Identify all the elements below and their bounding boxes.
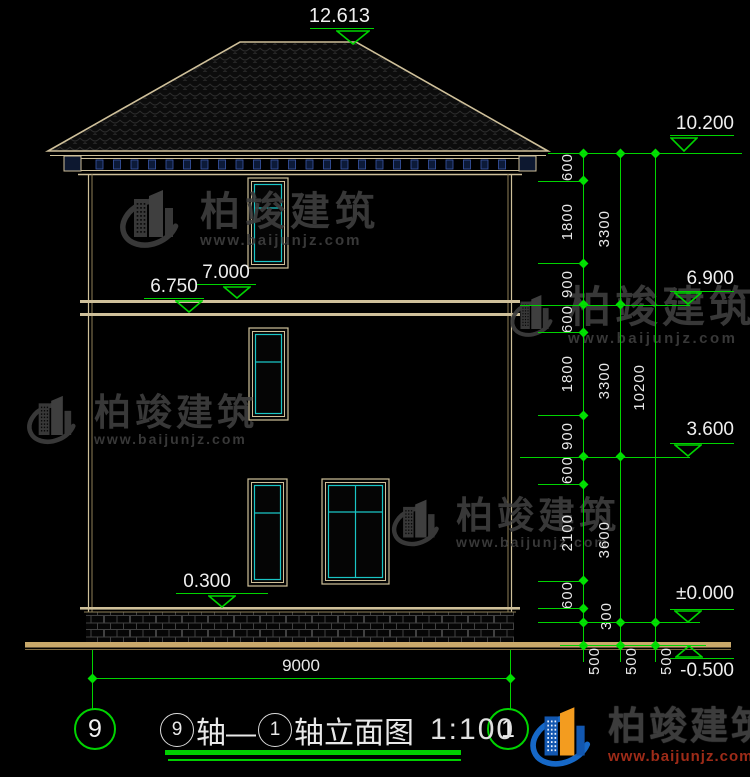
- elevation-marker-value: 12.613: [298, 6, 370, 26]
- elevation-marker-value: 7.000: [196, 263, 256, 282]
- dimension-label: 10200: [625, 153, 653, 622]
- dimension-line: [92, 678, 510, 679]
- dimension-label: 2100: [553, 484, 581, 581]
- dimension-value: 900: [560, 270, 575, 298]
- dimension-value: 500: [624, 647, 639, 675]
- watermark-site: www.baijunjz.com: [200, 233, 380, 248]
- title-suffix-text: 轴立面图: [294, 708, 414, 752]
- elevation-triangle-icon: [223, 286, 251, 304]
- dimension-line: [310, 28, 374, 29]
- dimension-value: 2100: [560, 514, 575, 551]
- dimension-line: [538, 608, 583, 609]
- dimension-label: 900: [553, 263, 581, 304]
- dimension-line: [520, 457, 690, 458]
- dimension-value: 500: [587, 647, 602, 675]
- dimension-line: [670, 135, 734, 136]
- eave-corbel-right: [519, 156, 536, 171]
- title-axis-start: 9: [172, 719, 183, 741]
- elevation-marker-value: 0.300: [176, 572, 238, 591]
- eave-assembly: [64, 156, 536, 175]
- roof-tile-hatch: [48, 42, 548, 151]
- brand-logo-icon: [110, 183, 190, 255]
- dimension-line: [538, 332, 583, 333]
- title-axis-start-bubble: 9: [160, 713, 194, 747]
- dimension-label: 900: [553, 415, 581, 456]
- dimension-line: [620, 153, 621, 662]
- elevation-triangle-icon: [670, 137, 698, 157]
- watermark: 柏竣建筑 www.baijunjz.com: [110, 183, 380, 255]
- dimension-label: 1800: [553, 332, 581, 415]
- dimension-line: [548, 153, 742, 154]
- dimension-value: 600: [560, 581, 575, 609]
- dimension-label: 1800: [553, 181, 581, 264]
- eave-corbel-left: [64, 156, 81, 171]
- title-axis-end: 1: [270, 719, 281, 741]
- dimension-label: 3300: [590, 153, 618, 305]
- dimension-label: 500: [585, 646, 603, 676]
- dimension-label: 3600: [590, 457, 618, 623]
- dimension-label: 500: [622, 646, 640, 676]
- hip-roof: [48, 42, 548, 156]
- brick-base-hatch: [86, 613, 514, 643]
- window-first-floor-right: [322, 479, 389, 584]
- dimension-line: [538, 181, 583, 182]
- watermark-brand: 柏竣建筑: [200, 191, 380, 233]
- dimension-line: [176, 593, 268, 594]
- dimension-value: 3300: [597, 210, 612, 247]
- elevation-triangle-icon: [208, 595, 236, 613]
- dimension-value: 900: [560, 422, 575, 450]
- title-underline-thick: [165, 750, 461, 755]
- rafter-tails: [96, 160, 506, 169]
- plinth-band: [80, 607, 520, 612]
- dimension-label: 600: [553, 305, 581, 333]
- elevation-marker-value: 3.600: [670, 420, 734, 439]
- dimension-label: 600: [553, 581, 581, 609]
- bottom-dimension-label: 9000: [262, 657, 340, 674]
- dimension-value: 10200: [632, 364, 647, 411]
- axis-bubble-9: 9: [74, 708, 116, 750]
- dimension-value: 3600: [597, 521, 612, 558]
- dimension-line: [144, 298, 204, 299]
- dimension-line: [538, 415, 583, 416]
- elevation-marker-value: 6.900: [670, 269, 734, 288]
- dimension-label: 600: [553, 457, 581, 485]
- dimension-value: 1800: [560, 355, 575, 392]
- elevation-marker-value: 10.200: [670, 114, 734, 133]
- footer-brand-name: 柏竣建筑: [608, 708, 750, 746]
- dimension-line: [538, 484, 583, 485]
- title-underline-thin: [168, 759, 461, 761]
- dimension-line: [520, 305, 690, 306]
- dimension-line: [538, 263, 583, 264]
- brand-logo-icon: [386, 494, 446, 552]
- title-scale: 1:100: [430, 713, 515, 747]
- dimension-value: 1800: [560, 203, 575, 240]
- dimension-label: 600: [553, 153, 581, 181]
- footer-brand-site: www.baijunjz.com: [608, 746, 750, 767]
- elevation-drawing-canvas: 柏竣建筑 www.baijunjz.com 柏竣建筑 www.baijunjz.…: [0, 0, 750, 777]
- floor-slab-band: [80, 300, 520, 316]
- elevation-triangle-icon: [175, 300, 203, 318]
- dimension-line: [655, 153, 656, 662]
- dimension-label: 3300: [590, 305, 618, 457]
- brand-logo-icon: [522, 700, 600, 774]
- dimension-value: 600: [560, 456, 575, 484]
- title-mid-text: 轴—: [196, 708, 256, 752]
- elevation-triangle-icon: [674, 610, 702, 628]
- watermark-site: www.baijunjz.com: [94, 432, 258, 446]
- watermark: 柏竣建筑 www.baijunjz.com: [20, 390, 258, 450]
- elevation-marker-value: ±0.000: [664, 584, 734, 603]
- elevation-marker-value: 6.750: [144, 277, 204, 296]
- dimension-value: 3300: [597, 362, 612, 399]
- dimension-value: 600: [560, 153, 575, 181]
- brand-logo-icon: [20, 390, 84, 450]
- dimension-line: [196, 284, 256, 285]
- watermark: 柏竣建筑 www.baijunjz.com: [386, 494, 620, 552]
- drawing-title: 9轴—1轴立面图1:100: [160, 708, 515, 752]
- elevation-triangle-icon: [674, 444, 702, 462]
- brand-logo-icon: [506, 286, 558, 346]
- title-axis-end-bubble: 1: [258, 713, 292, 747]
- elevation-triangle-icon: [675, 645, 703, 663]
- elevation-triangle-icon: [674, 292, 702, 310]
- watermark-brand: 柏竣建筑: [94, 394, 258, 433]
- elevation-triangle-icon: [336, 30, 370, 50]
- dimension-line: [538, 581, 583, 582]
- elevation-marker-value: -0.500: [664, 661, 734, 680]
- axis-bubble-label: 9: [88, 715, 102, 744]
- dimension-value: 600: [560, 305, 575, 333]
- window-first-floor-left: [248, 479, 287, 586]
- footer-brand: 柏竣建筑 www.baijunjz.com: [522, 700, 750, 774]
